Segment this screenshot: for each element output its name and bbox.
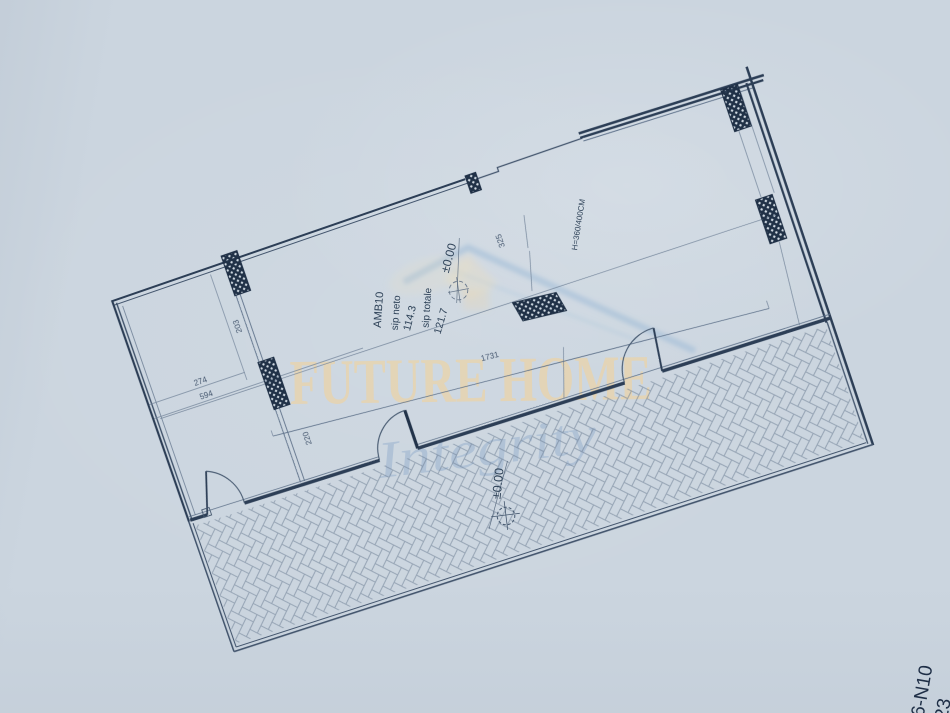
svg-text:±0.00: ±0.00	[438, 241, 459, 274]
svg-text:sip totale: sip totale	[421, 287, 435, 328]
svg-text:±0.00: ±0.00	[489, 467, 506, 500]
svg-text:121.7: 121.7	[432, 307, 451, 336]
svg-text:AMB10: AMB10	[372, 291, 386, 328]
svg-text:23: 23	[931, 697, 950, 713]
svg-text:H=360/400CM: H=360/400CM	[570, 198, 587, 251]
svg-text:114.3: 114.3	[401, 304, 419, 332]
